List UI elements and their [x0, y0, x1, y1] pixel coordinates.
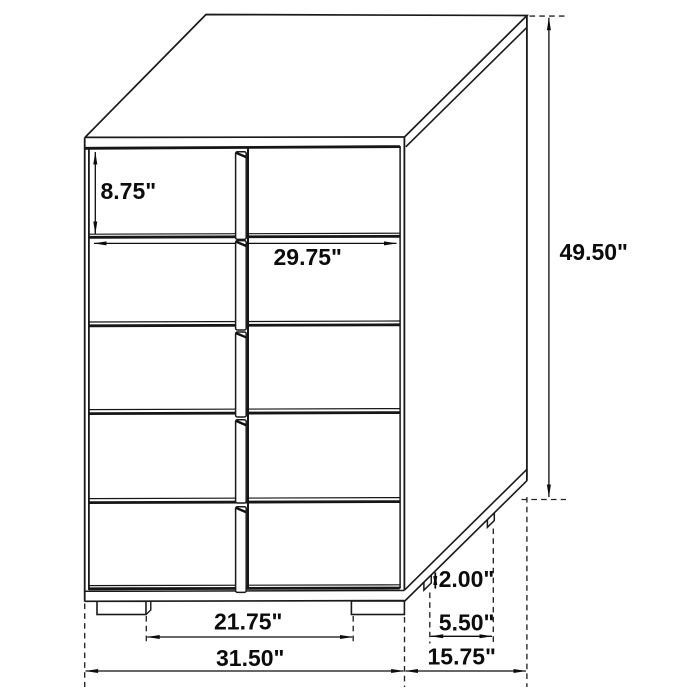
svg-text:8.75": 8.75"	[101, 178, 157, 204]
svg-text:21.75": 21.75"	[214, 609, 282, 635]
svg-text:49.50": 49.50"	[560, 239, 628, 265]
svg-text:31.50": 31.50"	[216, 645, 284, 671]
svg-text:29.75": 29.75"	[274, 244, 342, 270]
svg-text:5.50": 5.50"	[439, 610, 495, 636]
svg-text:15.75": 15.75"	[428, 644, 496, 670]
svg-text:2.00": 2.00"	[439, 566, 495, 592]
